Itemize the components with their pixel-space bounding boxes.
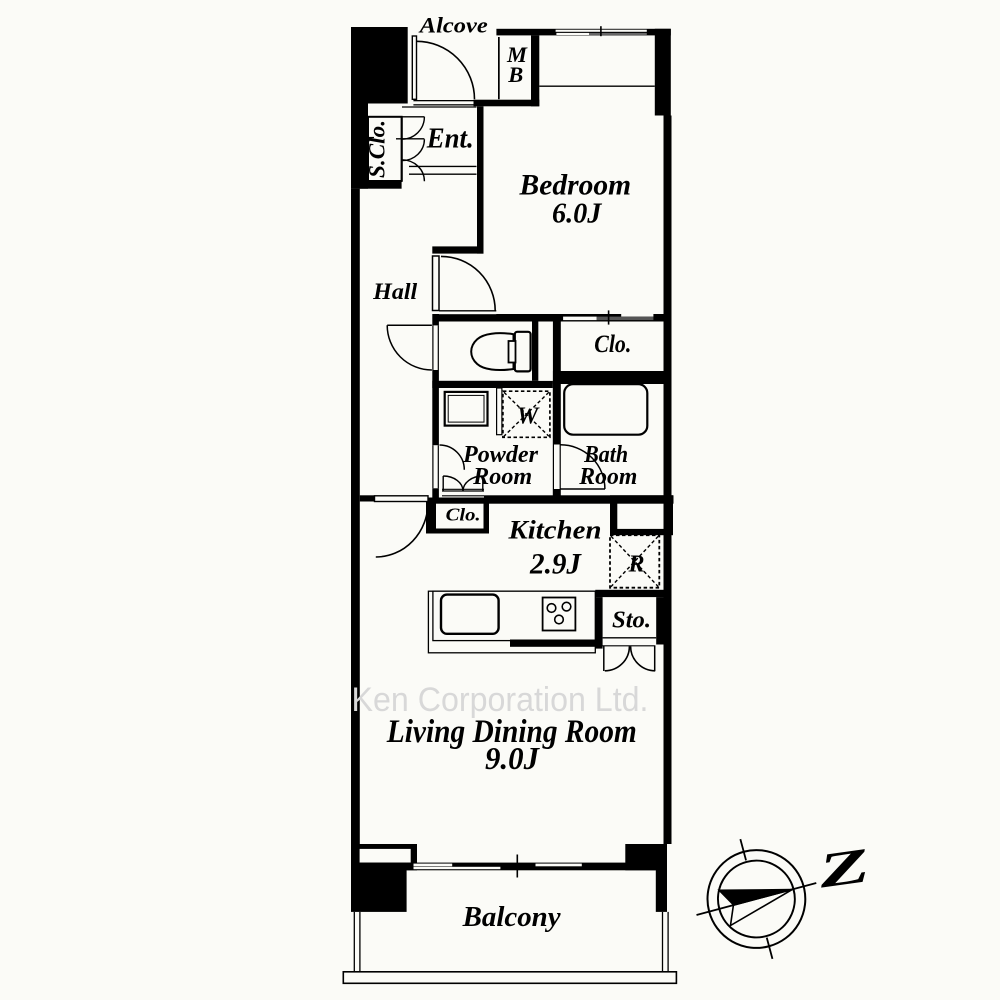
svg-text:Sto.: Sto. <box>612 608 651 634</box>
svg-text:Clo.: Clo. <box>446 504 481 524</box>
svg-text:S.Clo.: S.Clo. <box>365 120 390 178</box>
svg-text:Ent.: Ent. <box>426 123 474 155</box>
svg-text:Balcony: Balcony <box>462 902 562 933</box>
svg-text:Kitchen: Kitchen <box>507 516 601 545</box>
svg-text:9.0J: 9.0J <box>485 740 540 776</box>
svg-text:6.0J: 6.0J <box>552 198 602 229</box>
svg-text:R: R <box>627 551 644 577</box>
svg-text:Hall: Hall <box>372 279 417 305</box>
svg-text:W: W <box>517 404 540 430</box>
svg-text:B: B <box>507 62 523 87</box>
svg-text:2.9J: 2.9J <box>529 548 582 581</box>
svg-text:Clo.: Clo. <box>594 331 631 358</box>
svg-text:Z: Z <box>814 838 873 899</box>
svg-text:Alcove: Alcove <box>418 13 488 38</box>
svg-text:Room: Room <box>472 464 532 490</box>
svg-text:Bedroom: Bedroom <box>519 170 632 202</box>
svg-text:Room: Room <box>578 464 637 490</box>
